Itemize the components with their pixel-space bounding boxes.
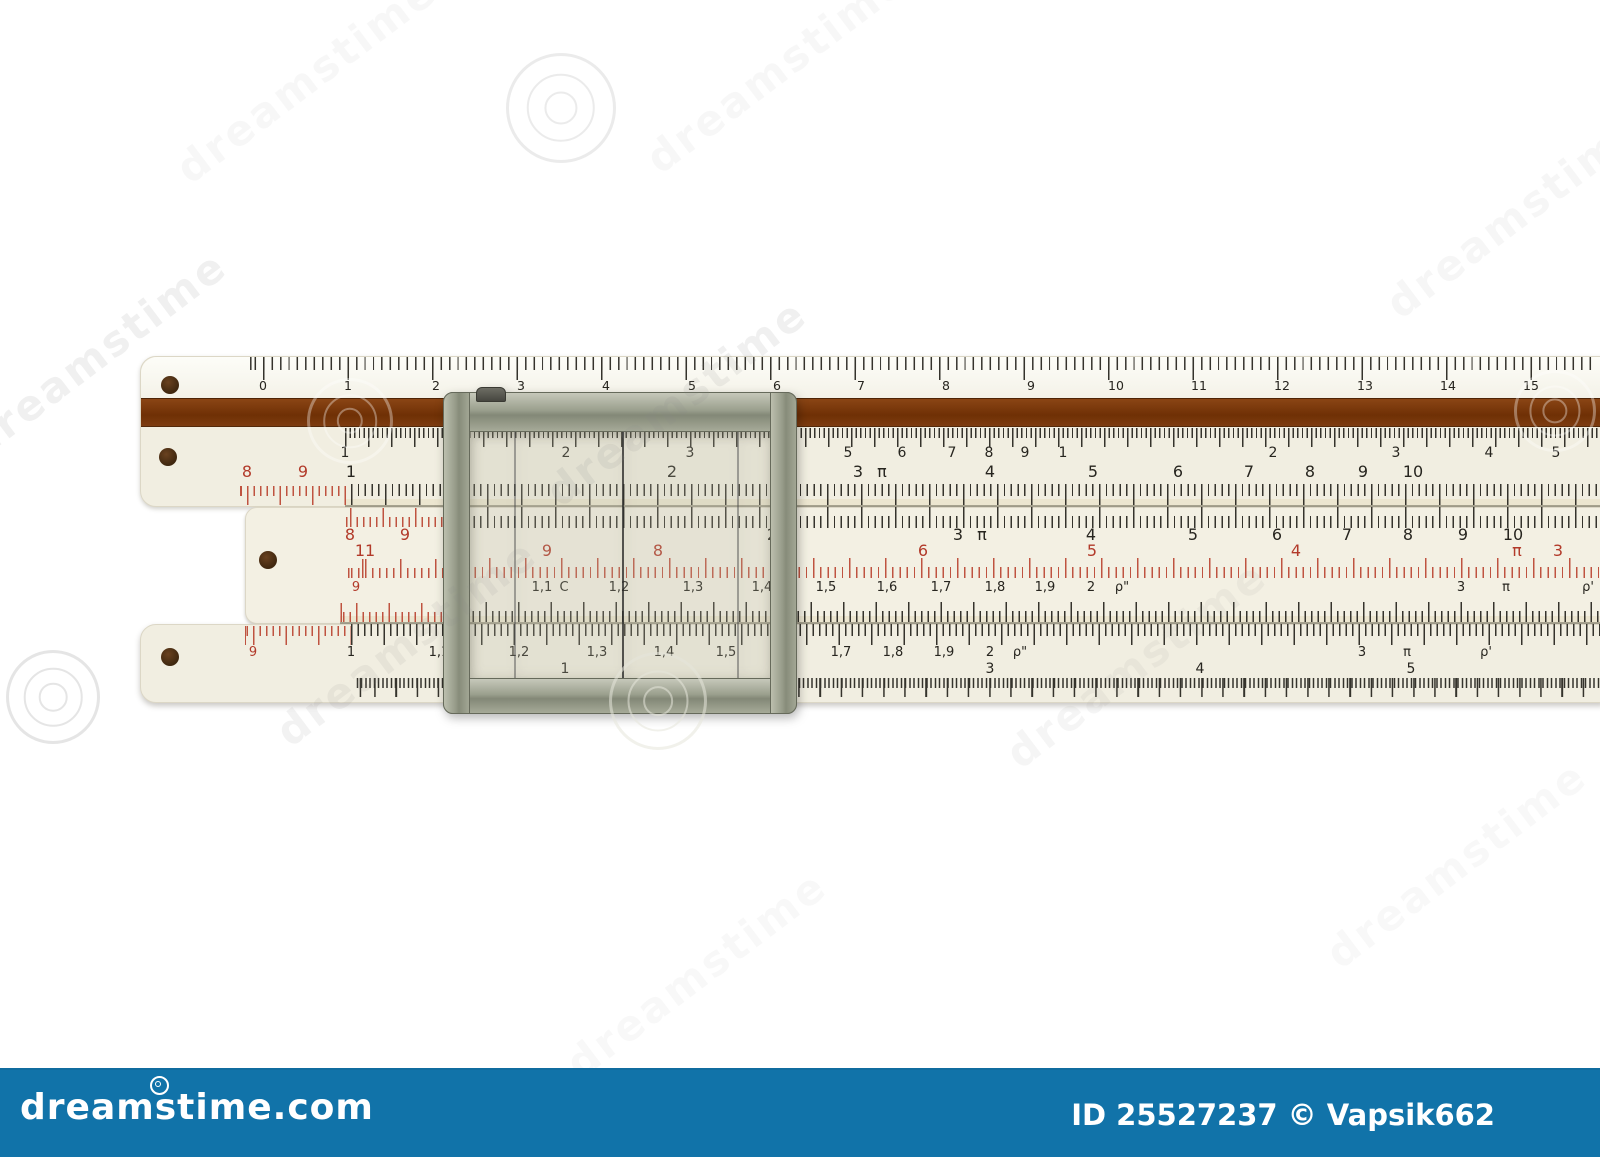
scale-label: 8 [242, 464, 252, 480]
scale-label: 5 [844, 446, 853, 460]
scale-label: 2 [432, 380, 440, 393]
scale-label: 8 [345, 527, 355, 543]
scale-label: 6 [1272, 527, 1282, 543]
cursor-hairline [622, 432, 624, 678]
scale-label: 3 [517, 380, 525, 393]
scale-label: 4 [1291, 543, 1301, 559]
cursor-frame-left [443, 392, 470, 714]
scale-label: π [1403, 646, 1411, 659]
scale-label: 13 [1357, 380, 1373, 393]
dreamstime-spiral-icon [150, 1076, 169, 1095]
tick-band-cm-ticks [250, 357, 1598, 380]
scale-label: 1,9 [1035, 581, 1056, 594]
scale-label: 6 [918, 543, 928, 559]
cursor-runner [443, 392, 797, 714]
scale-label: π [877, 464, 887, 480]
scale-label: 9 [1458, 527, 1468, 543]
scale-label: 6 [1173, 464, 1183, 480]
scale-label: 3 [1358, 646, 1366, 659]
scale-label: 6 [773, 380, 781, 393]
scale-label: 5 [688, 380, 696, 393]
scale-label: 1 [347, 646, 355, 659]
scale-label: 9 [400, 527, 410, 543]
scale-label: 9 [1021, 446, 1030, 460]
scale-label: 3 [1457, 581, 1465, 594]
scale-label: 3 [953, 527, 963, 543]
scale-label: 5 [1188, 527, 1198, 543]
scale-label: 3 [1392, 446, 1401, 460]
cursor-hairline [737, 432, 739, 678]
scale-label: ρ" [1115, 581, 1129, 594]
scale-label: 0 [259, 380, 267, 393]
scale-label: 9 [352, 581, 360, 594]
scale-label: 1 [1059, 446, 1068, 460]
slide-rule: 0123456789101112131415123456789123458912… [0, 0, 1600, 1157]
scale-label: 1 [344, 380, 352, 393]
scale-label: 9 [249, 646, 257, 659]
scale-label: ρ' [1582, 581, 1594, 594]
scale-label: 11 [355, 543, 375, 559]
scale-label: 7 [1244, 464, 1254, 480]
scale-label: 2 [986, 646, 994, 659]
rivet-hole [161, 376, 179, 394]
scale-label: 5 [1407, 662, 1416, 676]
tick-band-c-red-ext [340, 603, 453, 622]
scale-label: π [1512, 543, 1522, 559]
scale-label: 8 [1403, 527, 1413, 543]
scale-label: 4 [1196, 662, 1205, 676]
scale-label: 9 [1027, 380, 1035, 393]
scale-label: 1,7 [931, 581, 952, 594]
scale-label: 3 [986, 662, 995, 676]
scale-label: 2 [1087, 581, 1095, 594]
rivet-hole [259, 551, 277, 569]
scale-label: 1 [346, 464, 356, 480]
scale-label: 12 [1274, 380, 1290, 393]
scale-label: 8 [1305, 464, 1315, 480]
cursor-knob [476, 387, 506, 402]
tick-band-inverse-ext [345, 559, 453, 578]
scale-label: 5 [1552, 446, 1561, 460]
tick-band-stator-red-ext [240, 486, 351, 505]
watermark-footer-bar: dreamstime.com ID 25527237 © Vapsik662 [0, 1068, 1600, 1157]
scale-label: 1 [341, 446, 350, 460]
rivet-hole [159, 448, 177, 466]
scale-label: 5 [1087, 543, 1097, 559]
scale-label: 4 [602, 380, 610, 393]
scale-label: 4 [1485, 446, 1494, 460]
scale-layer: 0123456789101112131415123456789123458912… [0, 0, 1600, 1157]
rivet-hole [161, 648, 179, 666]
scale-label: 2 [1269, 446, 1278, 460]
scale-label: ρ" [1013, 646, 1027, 659]
scale-label: 1,5 [816, 581, 837, 594]
cursor-frame-bottom [443, 678, 797, 714]
scale-label: 6 [898, 446, 907, 460]
scale-label: 9 [1358, 464, 1368, 480]
scale-label: 7 [948, 446, 957, 460]
scale-label: 8 [942, 380, 950, 393]
scale-label: 11 [1191, 380, 1207, 393]
scale-label: 3 [853, 464, 863, 480]
scale-label: 1,8 [985, 581, 1006, 594]
scale-label: 8 [985, 446, 994, 460]
scale-label: 10 [1403, 464, 1423, 480]
scale-label: 3 [1553, 543, 1563, 559]
dreamstime-logo: dreamstime.com [20, 1087, 374, 1128]
image-credit: ID 25527237 © Vapsik662 [1071, 1098, 1495, 1132]
scale-label: 5 [1088, 464, 1098, 480]
scale-label: 1,9 [934, 646, 955, 659]
cursor-frame-right [770, 392, 797, 714]
tick-band-d-red-ext [245, 626, 351, 645]
cursor-hairline [514, 432, 516, 678]
scale-label: 7 [857, 380, 865, 393]
scale-label: 1,7 [831, 646, 852, 659]
scale-label: 10 [1108, 380, 1124, 393]
scale-label: 7 [1342, 527, 1352, 543]
scale-label: π [1502, 581, 1510, 594]
photo-stage: 0123456789101112131415123456789123458912… [0, 0, 1600, 1157]
scale-label: 1,8 [883, 646, 904, 659]
scale-label: 14 [1440, 380, 1456, 393]
scale-label: 4 [985, 464, 995, 480]
scale-label: 9 [298, 464, 308, 480]
scale-label: 15 [1523, 380, 1539, 393]
scale-label: 1,6 [877, 581, 898, 594]
scale-label: π [977, 527, 987, 543]
scale-label: ρ' [1480, 646, 1492, 659]
